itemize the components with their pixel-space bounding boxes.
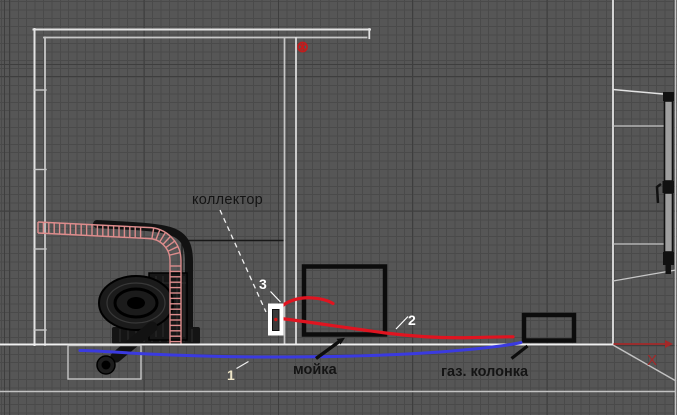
window-divider: [663, 181, 675, 193]
scene-canvas: X коллектор мойка газ. колонка 1 2 3: [0, 0, 677, 415]
pipe3-leader-line: [271, 292, 281, 303]
axis-gizmo: X: [614, 340, 674, 369]
window-handle: [657, 184, 661, 203]
gas-leader-line: [512, 346, 528, 359]
gas-heater-box[interactable]: [524, 315, 574, 341]
gas-heater-label: газ. колонка: [441, 364, 529, 380]
window-glass-lower: [665, 193, 673, 252]
vent-marker-icon[interactable]: [298, 42, 307, 51]
pipe-1-label: 1: [227, 367, 235, 383]
x-axis-arrowhead-icon: [665, 340, 673, 348]
x-axis-label: X: [647, 352, 657, 369]
window-glass-upper: [665, 101, 673, 181]
cabinet-outline[interactable]: [182, 241, 286, 297]
viewport-3d[interactable]: X коллектор мойка газ. колонка 1 2 3: [0, 0, 677, 415]
sink-label: мойка: [293, 362, 338, 378]
window-section[interactable]: [613, 90, 676, 282]
pipe2-leader-line: [396, 317, 408, 330]
collector-object[interactable]: [268, 304, 284, 336]
collector-leader-line: [220, 210, 266, 312]
window-foot: [666, 265, 672, 274]
pipe-2-label: 2: [408, 312, 416, 328]
collector-label: коллектор: [192, 192, 263, 208]
pipe-3-label: 3: [259, 276, 267, 292]
hot-water-pipe-3[interactable]: [282, 298, 333, 306]
window-frame-bottom: [663, 252, 674, 265]
window-frame-top: [663, 92, 674, 101]
pipe1-leader-line: [237, 362, 249, 369]
